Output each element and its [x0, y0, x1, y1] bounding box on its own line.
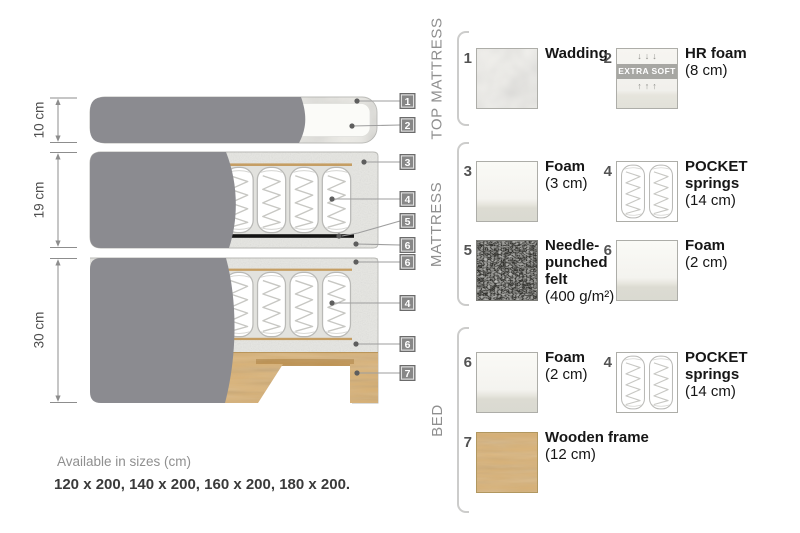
dimension-label-30cm: 30 cm: [32, 312, 47, 349]
callout-tag-2: 2: [400, 118, 415, 133]
callout-tag-7: 7: [400, 366, 415, 381]
legend-number-7: 7: [456, 434, 472, 451]
callout-tag-6c: 6: [400, 337, 415, 352]
bed-section-title: BED: [424, 327, 450, 513]
wadding-swatch: [476, 48, 538, 109]
bed-layer: [90, 258, 378, 403]
svg-text:6: 6: [405, 240, 411, 252]
svg-text:6: 6: [405, 339, 411, 351]
legend-number-3: 3: [456, 163, 472, 180]
pocket-springs-swatch: [616, 352, 678, 413]
extra-soft-badge: EXTRA SOFT: [616, 64, 678, 79]
dimension-label-19cm: 19 cm: [32, 182, 47, 219]
legend-number-4b: 4: [596, 354, 612, 371]
wooden-frame-swatch: [476, 432, 538, 493]
callout-tag-4: 4: [400, 192, 415, 207]
mattress-layer: [90, 152, 378, 248]
arrows-up-icon: ↑↑↑: [634, 82, 660, 91]
felt-swatch: [476, 240, 538, 301]
callout-tag-6b: 6: [400, 255, 415, 270]
svg-text:3: 3: [405, 157, 411, 169]
svg-text:4: 4: [405, 194, 411, 206]
size-list: 120 x 200, 140 x 200, 160 x 200, 180 x 2…: [54, 476, 350, 493]
legend-number-4: 4: [596, 163, 612, 180]
wooden-frame: [222, 352, 378, 403]
legend-label-foam-2cm: Foam (2 cm): [685, 237, 773, 271]
svg-text:6: 6: [405, 257, 411, 269]
dimension-label-10cm: 10 cm: [32, 102, 47, 139]
svg-text:1: 1: [405, 96, 411, 108]
foam-swatch: [616, 240, 678, 301]
legend-number-6: 6: [596, 242, 612, 259]
legend-number-1: 1: [456, 50, 472, 67]
dimension-19cm: 19 cm: [32, 153, 78, 248]
legend-label-pocket-springs: POCKET springs (14 cm): [685, 158, 773, 209]
svg-text:2: 2: [405, 120, 411, 132]
foam-swatch: [476, 161, 538, 222]
dimension-10cm: 10 cm: [32, 98, 78, 143]
foam-swatch: [476, 352, 538, 413]
callout-tag-6: 6: [400, 238, 415, 253]
infographic-page: 10 cm 19 cm 30 cm: [0, 0, 800, 533]
callout-tag-5: 5: [400, 214, 415, 229]
dimension-30cm: 30 cm: [32, 259, 78, 403]
available-sizes-caption: Available in sizes (cm): [57, 454, 191, 469]
arrows-down-icon: ↓↓↓: [634, 52, 660, 61]
legend-number-2: 2: [596, 50, 612, 67]
callout-tag-3: 3: [400, 155, 415, 170]
legend-number-6b: 6: [456, 354, 472, 371]
legend-number-5: 5: [456, 242, 472, 259]
legend-label-bed-springs: POCKET springs (14 cm): [685, 349, 773, 400]
callout-tag-4b: 4: [400, 296, 415, 311]
svg-text:7: 7: [405, 368, 411, 380]
felt-layer-line: [222, 234, 354, 238]
top-mattress-section-title: TOP MATTRESS: [424, 31, 450, 126]
top-mattress-layer: [90, 97, 377, 143]
callout-tags: 1 2 3 4 5 6 6 4 6 7: [400, 94, 415, 381]
pocket-springs-swatch: [616, 161, 678, 222]
mattress-section-title: MATTRESS: [424, 142, 450, 306]
hr-foam-swatch: ↓↓↓ EXTRA SOFT ↑↑↑: [616, 48, 678, 109]
svg-text:5: 5: [405, 216, 411, 228]
top-mattress-bracket: [457, 31, 469, 126]
legend-label-hr-foam: HR foam (8 cm): [685, 45, 773, 79]
legend-label-wooden-frame: Wooden frame (12 cm): [545, 429, 695, 463]
svg-text:4: 4: [405, 298, 411, 310]
callout-tag-1: 1: [400, 94, 415, 109]
